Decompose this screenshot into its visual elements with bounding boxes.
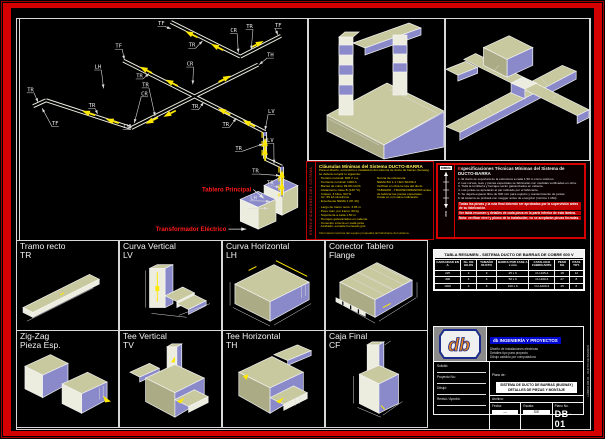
legend-cell-tee-vertical: Tee Vertical TV	[119, 330, 222, 428]
zigzag-drawing	[17, 337, 118, 425]
spec-red-dimension-column: DIMEN. mm	[438, 165, 455, 237]
plano-de-section: Plano de: SISTEMA DE DUCTO DE BARRAS (BU…	[490, 362, 583, 395]
spec-line: Cotas en mm salvo indicación.	[377, 196, 431, 200]
legend-cell-tee-horizontal: Tee Horizontal TH	[222, 330, 325, 428]
legend-cell-curva-vertical: Curva Vertical LV	[119, 240, 222, 331]
piece-code: TR	[20, 251, 66, 260]
spec-yellow-content: Cláusulas Mínimas del Sistema DUCTO-BARR…	[316, 162, 433, 239]
fecha-label: Fecha:	[492, 404, 518, 408]
table-cell: 3	[477, 271, 496, 276]
table-cell: 45	[555, 284, 568, 289]
svg-text:TR: TR	[252, 169, 259, 175]
spec-highlighted-note: Todas las piezas y la ruta final deberán…	[458, 202, 581, 210]
plano-title-line2: DETALLES DE PIEZAS Y MONTAJE	[496, 388, 577, 392]
field-value	[437, 379, 486, 384]
svg-text:TR: TR	[267, 181, 274, 187]
escala-value: S/E	[523, 410, 549, 414]
company-detail-line: Dibujo asistido por computadora	[490, 355, 580, 359]
fecha-cell: Fecha: —	[490, 403, 521, 430]
table-cell: 8	[570, 277, 583, 282]
tee-horizontal-drawing	[223, 337, 324, 425]
table-row: 100046100 x 6CU-1000-4456	[435, 284, 583, 289]
spec-block-red: DIMEN. mm Especificaciones Técnicas Míni…	[436, 163, 586, 239]
svg-text:F: F	[248, 203, 251, 209]
title-block-fields: Solicitó: Proyecto No.: Dibujó: Revisó /…	[434, 362, 490, 429]
svg-text:LV: LV	[268, 109, 275, 115]
company-name: db INGENIERÍA Y PROYECTOS	[490, 337, 561, 344]
table-cell: 6	[477, 284, 496, 289]
table-header-cell: No. DE HILOS	[461, 260, 476, 270]
spec-line: · Envolvente NEMA 1 (IP-40)	[319, 200, 373, 204]
svg-text:TR: TR	[27, 87, 34, 93]
svg-text:TR: TR	[246, 24, 253, 30]
field-value	[437, 368, 486, 373]
legend-cell-caja-final: Caja Final CF	[325, 330, 428, 428]
spec-highlighted-note: Ver tabla resumen y detalles de cada pie…	[458, 211, 581, 215]
plano-title-line1: SISTEMA DE DUCTO DE BARRAS (BUSWAY)	[496, 383, 577, 387]
field-proyecto: Proyecto No.:	[437, 375, 486, 384]
cell-label: Tramo recto TR	[20, 242, 66, 260]
legend-cell-zigzag: Zig-Zag Pieza Esp.	[16, 330, 119, 428]
svg-text:LH: LH	[95, 65, 102, 71]
piece-code: LV	[123, 251, 176, 260]
legend-cell-tramo-recto: Tramo recto TR	[16, 240, 119, 331]
file-label: Archivo:	[490, 396, 583, 403]
spec-line: 6. El sistema se probará con megger ante…	[458, 197, 581, 201]
fecha-value: —	[492, 410, 518, 414]
spec-block-yellow: ESPECIFICACIONES DEL SISTEMA Cláusulas M…	[306, 161, 434, 240]
svg-text:LV: LV	[123, 124, 130, 130]
table-cell: 4	[461, 284, 476, 289]
svg-text:CR: CR	[187, 62, 194, 68]
table-header-cell: CAPACIDAD EN A	[435, 260, 460, 270]
table-cell: 25 x 6	[497, 271, 528, 276]
field-reviso: Revisó / Aprobó:	[437, 397, 486, 406]
table-header-cell: PESO KG	[555, 260, 568, 270]
table-cell: 400	[435, 277, 460, 282]
svg-text:TR: TR	[192, 104, 199, 110]
field-solicito: Solicitó:	[437, 364, 486, 373]
svg-text:TF: TF	[115, 44, 122, 50]
table-cell: 27	[555, 277, 568, 282]
svg-text:LV: LV	[267, 138, 274, 144]
table-header-cell: BARRA POR FASE A x mm	[497, 260, 528, 270]
plano-no-label: Plano No.	[555, 404, 581, 408]
legend-cell-conector-tablero: Conector Tablero Flange	[325, 240, 428, 331]
table-cell: CU-400-4	[529, 277, 554, 282]
tee-vertical-drawing	[120, 337, 221, 425]
spec-highlighted-note: Nota: verificar nivel y plomo de la inst…	[458, 216, 581, 220]
svg-text:TR: TR	[142, 82, 149, 88]
table-header-cell: CATALOGO FABRICANTE	[529, 260, 554, 270]
margin-label: LÁMINA DB-01 · DUCTO DE BARRAS	[586, 345, 590, 397]
svg-text:TR: TR	[89, 103, 96, 109]
table-cell: CU-225-4	[529, 271, 554, 276]
table-cell: 225	[435, 271, 460, 276]
piece-code: Pieza Esp.	[20, 341, 61, 350]
svg-text:TH: TH	[267, 53, 274, 59]
spec-line: · Acabado: esmalte horneado gris	[319, 225, 431, 229]
riser-detail-view	[308, 18, 445, 161]
svg-text:db: db	[448, 335, 470, 355]
table-cell: 4	[461, 277, 476, 282]
spec-yellow-subtitle: Para el diseño, suministro e instalación…	[319, 169, 431, 176]
company-logo: db	[434, 327, 487, 361]
field-value	[437, 390, 486, 395]
table-row: 2254325 x 6CU-225-41812	[435, 271, 583, 276]
legend-cell-curva-horizontal: Curva Horizontal LH	[222, 240, 325, 331]
spec-side-text: ESPECIFICACIONES DEL SISTEMA	[309, 167, 313, 235]
table-cell: 4	[461, 271, 476, 276]
table-cell: 50 x 6	[497, 277, 528, 282]
plano-label: Plano de:	[492, 373, 505, 377]
svg-text:TF: TF	[158, 21, 165, 27]
table-cell: 6	[570, 284, 583, 289]
riser-detail-drawing	[309, 19, 444, 160]
table-header-row: CAPACIDAD EN ANo. DE HILOSTAMAÑO DUCTOBA…	[435, 260, 583, 270]
busway-isometric-drawing: TFTRCRTRTFTHTFTRCRTRCRLHTRTRTFLVTRTRLVTR…	[20, 19, 307, 240]
ruler-unit-label: mm	[444, 211, 448, 217]
svg-text:TR: TR	[136, 73, 143, 79]
spec-side-label: ESPECIFICACIONES DEL SISTEMA	[307, 162, 316, 239]
summary-table: TABLA RESUMEN - SISTEMA DUCTO DE BARRAS …	[433, 249, 585, 291]
busway-routing-view: TFTRCRTRTFTHTFTRCRTRCRLHTRTRTFLVTRTRLVTR…	[19, 18, 308, 241]
table-cell: 12	[570, 271, 583, 276]
db-logo-icon: db	[438, 328, 482, 360]
table-row: 4004450 x 6CU-400-4278	[435, 277, 583, 282]
table-cell: 18	[555, 271, 568, 276]
svg-text:TF: TF	[52, 121, 59, 127]
escala-cell: Escala: S/E	[521, 403, 552, 430]
table-header-cell: TAMAÑO DUCTO	[477, 260, 496, 270]
svg-text:Transformador Eléctrico: Transformador Eléctrico	[156, 226, 227, 233]
table-body: 2254325 x 6CU-225-418124004450 x 6CU-400…	[435, 271, 583, 289]
table-cell: CU-1000-4	[529, 284, 554, 289]
cross-junction-drawing	[446, 19, 589, 160]
piece-code: TV	[123, 341, 167, 350]
piece-code: Flange	[329, 251, 394, 260]
escala-label: Escala:	[523, 404, 549, 408]
table-cell: 4	[477, 277, 496, 282]
piece-code: CF	[329, 341, 367, 350]
svg-text:TR: TR	[189, 43, 196, 49]
ruler-icon	[441, 170, 451, 210]
field-dibujo: Dibujó:	[437, 386, 486, 395]
plano-no-cell: Plano No. DB-01	[553, 403, 583, 430]
table-cell: 100 x 6	[497, 284, 528, 289]
sheet-number: DB-01	[555, 409, 581, 429]
svg-text:TF: TF	[275, 23, 282, 29]
company-info: db INGENIERÍA Y PROYECTOS Diseño de inst…	[487, 327, 583, 361]
table-cell: 1000	[435, 284, 460, 289]
svg-text:TR: TR	[222, 122, 229, 128]
caja-final-drawing	[326, 337, 427, 425]
svg-text:Tablero Principal: Tablero Principal	[202, 186, 252, 193]
spec-yellow-footer: Información técnica del equipo propiedad…	[319, 231, 431, 235]
svg-text:TR: TR	[235, 146, 242, 152]
field-value	[437, 401, 486, 406]
plano-title: SISTEMA DE DUCTO DE BARRAS (BUSWAY) DETA…	[496, 382, 577, 392]
drawing-sheet: TFTRCRTRTFTHTFTRCRTRCRLHTRTRTFLVTRTRLVTR…	[0, 0, 605, 439]
svg-text:CR: CR	[230, 28, 237, 34]
title-block: db db INGENIERÍA Y PROYECTOS Diseño de i…	[433, 326, 584, 415]
spec-red-title: Especificaciones Técnicas Mínimas del Si…	[458, 167, 581, 177]
table-header-cell: PZAS TOT.	[570, 260, 583, 270]
margin-label-strip: LÁMINA DB-01 · DUCTO DE BARRAS	[585, 330, 590, 412]
cross-junction-detail-view	[445, 18, 590, 161]
spec-red-content: Especificaciones Técnicas Mínimas del Si…	[455, 165, 584, 237]
svg-text:CR: CR	[141, 91, 148, 97]
table-title: TABLA RESUMEN - SISTEMA DUCTO DE BARRAS …	[435, 251, 583, 259]
piece-code: LH	[226, 251, 289, 260]
svg-text:LH: LH	[250, 195, 257, 201]
piece-code: TH	[226, 341, 280, 350]
